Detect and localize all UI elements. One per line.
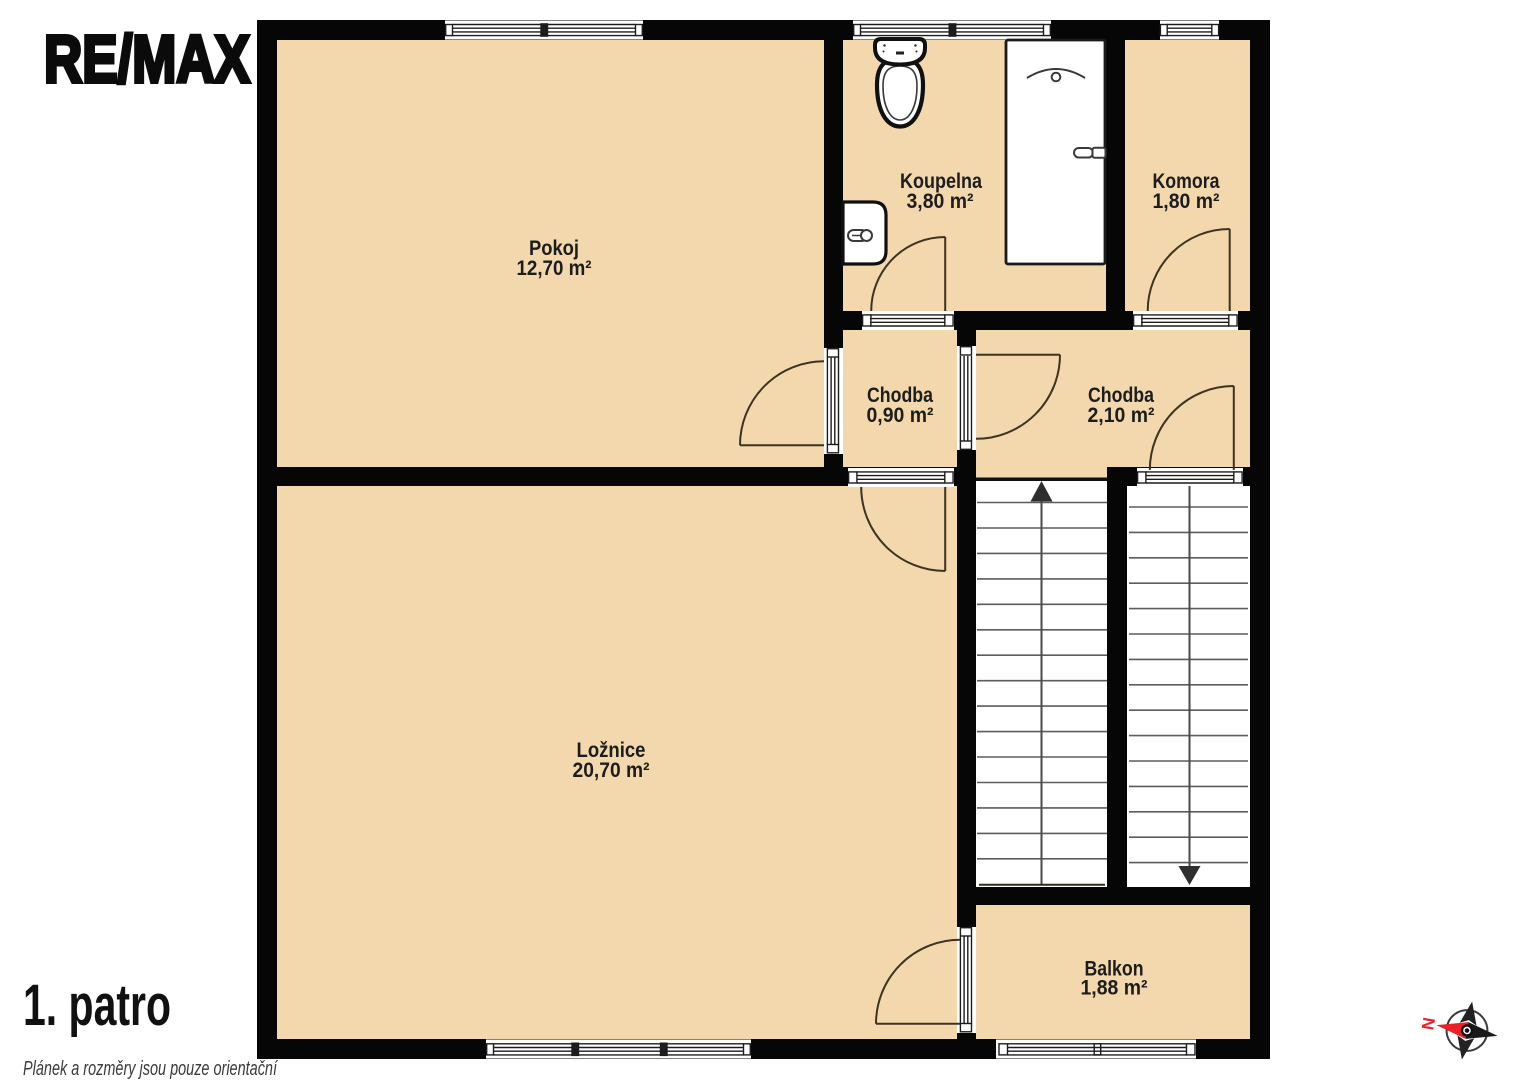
svg-text:Plánek a rozměry jsou pouze or: Plánek a rozměry jsou pouze orientační	[23, 1058, 279, 1080]
svg-text:20,70 m²: 20,70 m²	[573, 759, 650, 782]
svg-text:0,90 m²: 0,90 m²	[867, 404, 934, 427]
svg-text:2,10 m²: 2,10 m²	[1088, 404, 1155, 427]
svg-text:1,88 m²: 1,88 m²	[1081, 977, 1148, 1000]
svg-text:1,80 m²: 1,80 m²	[1153, 190, 1220, 213]
svg-text:3,80 m²: 3,80 m²	[907, 190, 974, 213]
svg-text:12,70 m²: 12,70 m²	[517, 257, 592, 280]
svg-text:1. patro: 1. patro	[23, 973, 171, 1038]
svg-text:RE/MAX: RE/MAX	[44, 22, 250, 97]
